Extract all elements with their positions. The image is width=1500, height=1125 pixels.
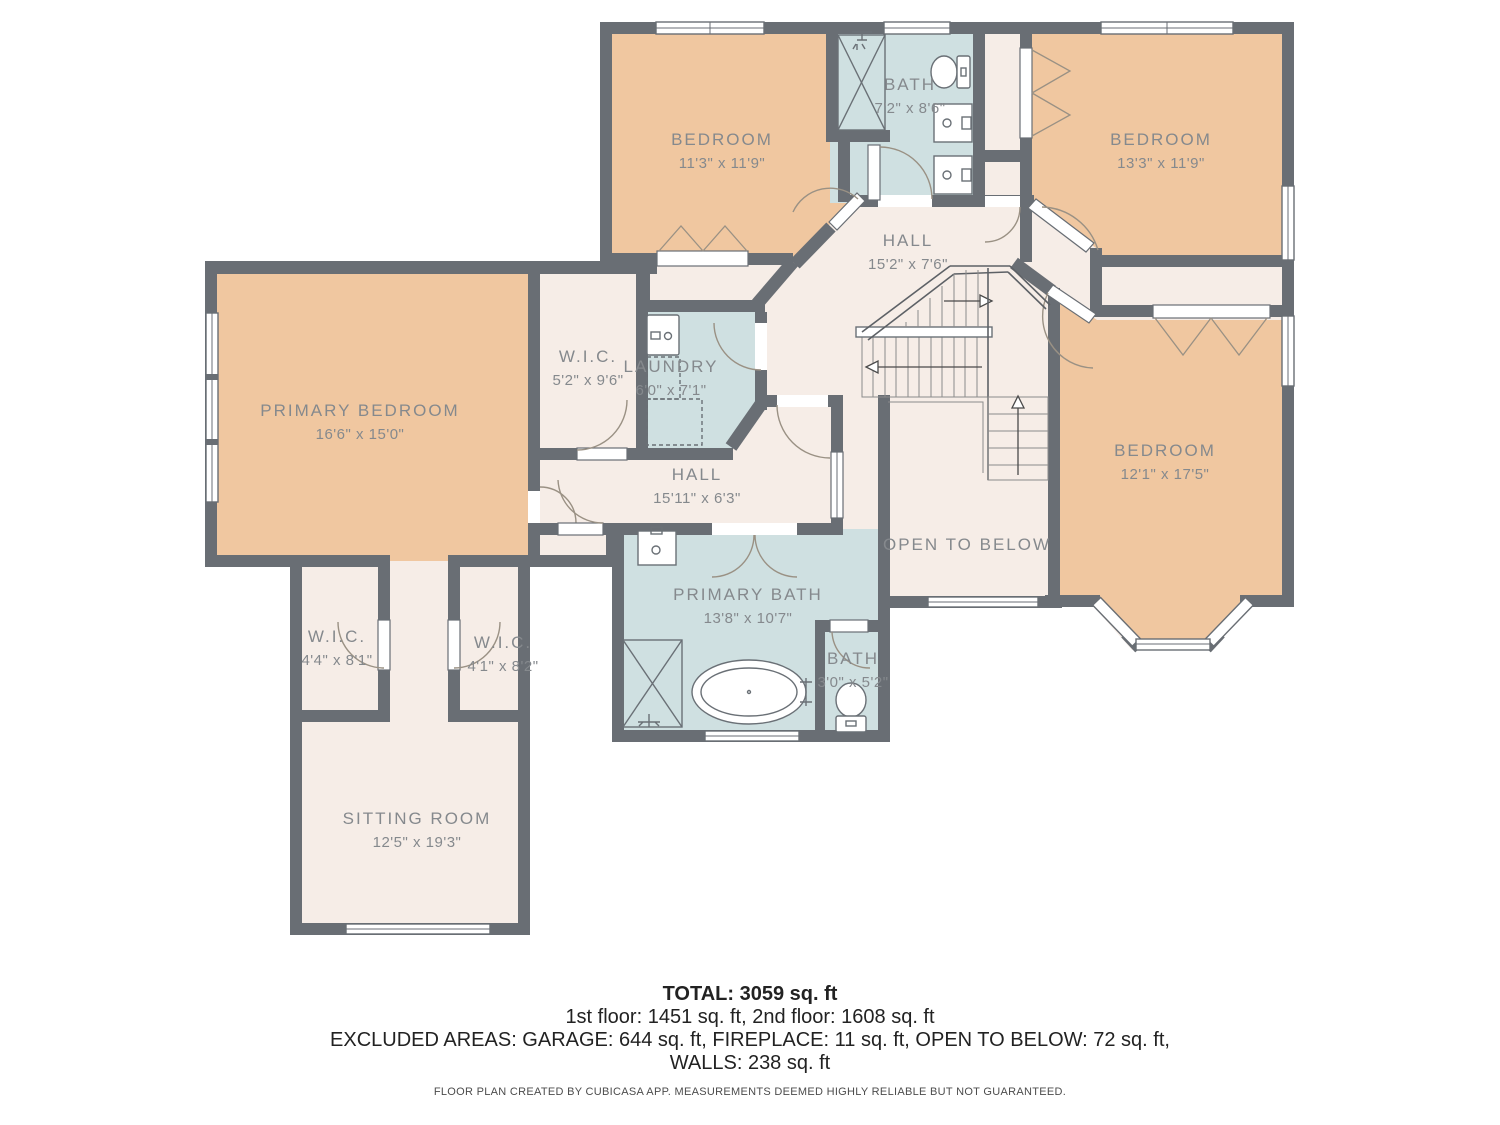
disclaimer-text: FLOOR PLAN CREATED BY CUBICASA APP. MEAS… — [0, 1086, 1500, 1098]
room-label-primary-bath: PRIMARY BATH — [673, 585, 823, 604]
room-label-bedroom-top-right: BEDROOM — [1110, 130, 1212, 149]
room-dims-primary-bath: 13'8" x 10'7" — [704, 610, 793, 627]
toilet-icon — [931, 56, 970, 88]
room-dims-bedroom-top-left: 11'3" x 11'9" — [679, 155, 766, 172]
room-label-laundry: LAUNDRY — [624, 357, 719, 376]
room-dims-sitting-room: 12'5" x 19'3" — [373, 834, 462, 851]
floorplan-page: BEDROOM11'3" x 11'9"BATH7'2" x 8'6"BEDRO… — [0, 0, 1500, 1125]
room-label-hall-upper: HALL — [883, 231, 934, 250]
room-dims-wic-primary: 5'2" x 9'6" — [552, 372, 623, 389]
room-dims-hall-lower: 15'11" x 6'3" — [653, 490, 741, 507]
room-dims-primary-bedroom: 16'6" x 15'0" — [316, 426, 405, 443]
room-dims-wic-left: 4'4" x 8'1" — [301, 652, 372, 669]
room-dims-bedroom-top-right: 13'3" x 11'9" — [1117, 155, 1205, 172]
room-dims-hall-upper: 15'2" x 7'6" — [868, 256, 948, 273]
room-label-primary-bedroom: PRIMARY BEDROOM — [260, 401, 459, 420]
room-label-bath-top: BATH — [884, 75, 936, 94]
walls-area-text: WALLS: 238 sq. ft — [0, 1052, 1500, 1075]
room-label-bedroom-right: BEDROOM — [1114, 441, 1216, 460]
room-label-bath-small: BATH — [827, 649, 879, 668]
area-summary: TOTAL: 3059 sq. ft 1st floor: 1451 sq. f… — [0, 983, 1500, 1075]
room-label-wic-primary: W.I.C. — [559, 347, 617, 366]
floor-areas-text: 1st floor: 1451 sq. ft, 2nd floor: 1608 … — [0, 1006, 1500, 1029]
room-label-wic-left: W.I.C. — [308, 627, 366, 646]
total-area-text: TOTAL: 3059 sq. ft — [0, 983, 1500, 1006]
room-dims-wic-right: 4'1" x 8'2" — [467, 658, 538, 675]
floorplan-drawing: BEDROOM11'3" x 11'9"BATH7'2" x 8'6"BEDRO… — [0, 0, 1500, 1125]
room-dims-bath-small: 3'0" x 5'2" — [817, 674, 888, 691]
room-dims-laundry: 6'0" x 7'1" — [635, 382, 706, 399]
room-label-bedroom-top-left: BEDROOM — [671, 130, 773, 149]
room-label-open-to-below: OPEN TO BELOW — [883, 535, 1051, 554]
sink-icon — [638, 527, 676, 565]
room-label-hall-lower: HALL — [672, 465, 723, 484]
room-label-wic-right: W.I.C. — [474, 633, 532, 652]
room-label-sitting-room: SITTING ROOM — [343, 809, 492, 828]
room-dims-bath-top: 7'2" x 8'6" — [874, 100, 945, 117]
room-dims-bedroom-right: 12'1" x 17'5" — [1121, 466, 1210, 483]
excluded-areas-text: EXCLUDED AREAS: GARAGE: 644 sq. ft, FIRE… — [0, 1029, 1500, 1052]
